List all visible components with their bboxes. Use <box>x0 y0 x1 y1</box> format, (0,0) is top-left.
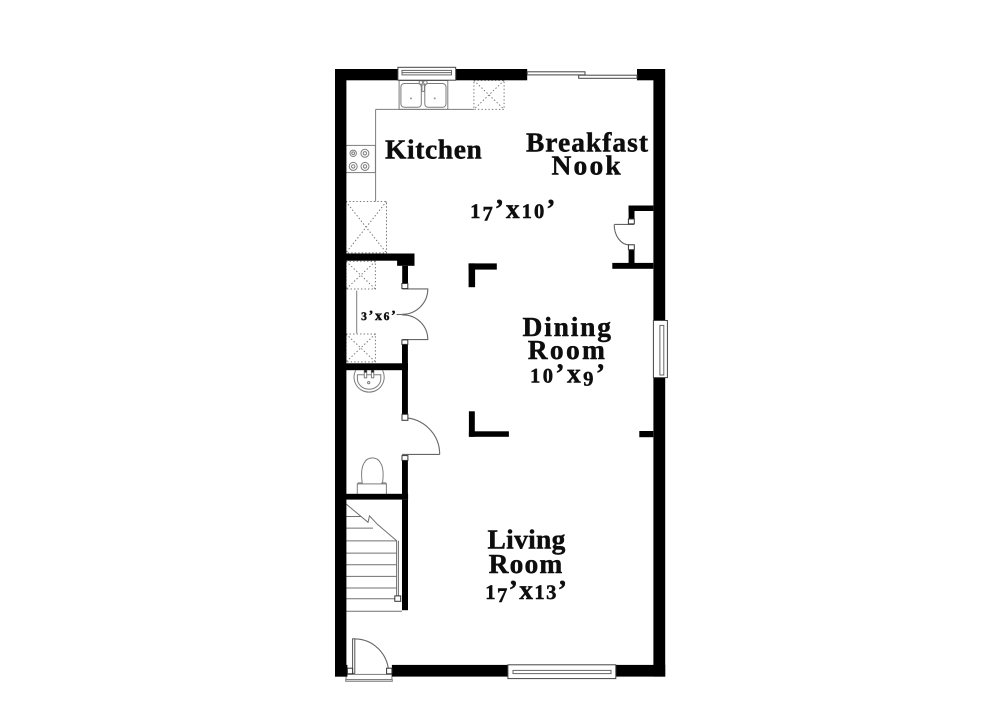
svg-text:Nook: Nook <box>551 150 622 181</box>
svg-text:Kitchen: Kitchen <box>385 133 482 164</box>
svg-text:3’x6’: 3’x6’ <box>361 309 397 324</box>
